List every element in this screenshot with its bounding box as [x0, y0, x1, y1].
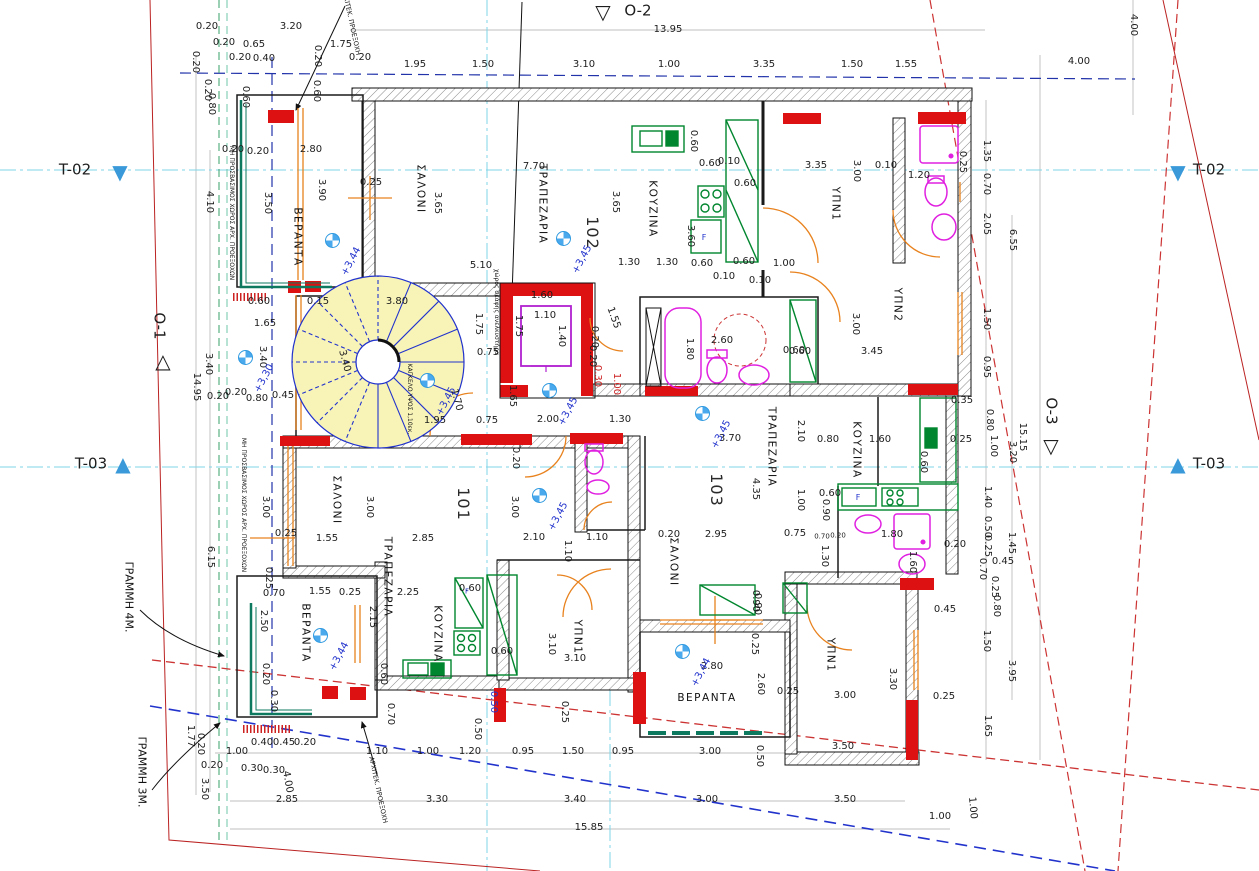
- dimension-label: 0.20: [312, 45, 322, 67]
- dimension-label: 0.20: [225, 388, 247, 398]
- dimension-label: 0.25: [559, 701, 569, 723]
- floor-plan: 13.950.203.200.200.651.750.200.400.200.2…: [0, 0, 1259, 871]
- dimension-label: 3.35: [805, 161, 827, 171]
- dimension-label: 1.10: [562, 540, 572, 562]
- elevation-target-icon: [675, 644, 690, 659]
- room-label: ΣΑΛΟΝΙ: [668, 537, 679, 586]
- dimension-label: 3.80: [386, 297, 408, 307]
- dimension-label: 0.65: [243, 40, 265, 50]
- dimension-label: 0.95: [981, 356, 991, 378]
- dimension-label: 2.00: [537, 415, 559, 425]
- annotation-note: F: [465, 589, 469, 596]
- room-label: ΥΠΝ1: [825, 638, 836, 673]
- dimension-label: 0.25: [957, 151, 967, 173]
- dimension-label: 0.20: [247, 147, 269, 157]
- elevation-target-icon: [420, 373, 435, 388]
- dimension-label: 2.25: [397, 588, 419, 598]
- dimension-label: 6.15: [205, 546, 215, 568]
- elevation-target-icon: [695, 406, 710, 421]
- elevation-value: +3,45: [546, 500, 570, 532]
- dimension-label: 0.80: [206, 93, 216, 115]
- room-label: ΤΡΑΠΕΖΑΡΙΑ: [537, 164, 548, 244]
- dimension-label: 1.40: [556, 325, 566, 347]
- dimension-label: 0.90: [752, 593, 762, 615]
- dimension-label: 3.20: [280, 22, 302, 32]
- dimension-label: 1.30: [618, 258, 640, 268]
- dimension-label: 2.60: [755, 673, 765, 695]
- dimension-label: 0.50: [754, 745, 764, 767]
- dimension-label: 6.55: [1007, 229, 1017, 251]
- dimension-label: 3.00: [699, 747, 721, 757]
- dimension-label: 0.60: [733, 257, 755, 267]
- dimension-label: 0.60: [248, 297, 270, 307]
- dimension-label: 0.70: [981, 173, 991, 195]
- dimension-label: 0.80: [984, 409, 994, 431]
- dimension-label: 2.60: [711, 336, 733, 346]
- dimension-label: 1.40: [982, 486, 992, 508]
- dimension-label: 0.60: [688, 130, 698, 152]
- dimension-label: 0.20: [229, 53, 251, 63]
- elevation-target-icon: [556, 231, 571, 246]
- dimension-label: 3.00: [851, 160, 861, 182]
- dimension-label: 1.30: [656, 258, 678, 268]
- dimension-label: 0.45: [272, 391, 294, 401]
- dimension-label: 1.50: [472, 60, 494, 70]
- dimension-label: 1.00: [417, 747, 439, 757]
- dimension-label: 0.25: [777, 687, 799, 697]
- room-label: ΒΕΡΑΝΤΑ: [677, 693, 736, 704]
- dimension-label: 3.95: [1006, 660, 1016, 682]
- dimension-label: 1.60: [907, 551, 917, 573]
- elevation-value: +3,44: [689, 656, 713, 688]
- dimension-label: 1.00: [966, 796, 978, 819]
- dimension-label: 3.20: [1007, 441, 1017, 463]
- dimension-label: 0.25: [950, 435, 972, 445]
- dimension-label: 0.45: [992, 557, 1014, 567]
- dimension-label: 1.45: [1006, 532, 1016, 554]
- annotation-note: ΓΡΑΜΜΗ 4Μ.: [124, 561, 135, 632]
- dimension-label: 3.65: [432, 192, 442, 214]
- dimension-label: 3.65: [610, 191, 620, 213]
- dimension-label: 0.30: [241, 764, 263, 774]
- dimension-label: 0.95: [512, 747, 534, 757]
- dimension-label: 0.60: [691, 259, 713, 269]
- section-marker-label: O-1: [152, 312, 167, 339]
- dimension-label: 1.75: [473, 313, 483, 335]
- dimension-label: 2.85: [412, 534, 434, 544]
- dimension-label: 0.25: [275, 529, 297, 539]
- dimension-label: 15.15: [1017, 423, 1027, 452]
- section-marker-label: O-3: [1044, 397, 1059, 424]
- dimension-label: 1.75: [330, 40, 352, 50]
- dimension-label: 2.80: [300, 145, 322, 155]
- dimension-label: 1.55: [604, 306, 621, 330]
- dimension-label: 0.60: [734, 179, 756, 189]
- dimension-label: 1.35: [981, 140, 991, 162]
- dimension-label: 0.40: [253, 54, 275, 64]
- dimension-label: 1.50: [981, 630, 991, 652]
- dimension-label: 1.65: [507, 385, 517, 407]
- dimension-label: 1.30: [609, 415, 631, 425]
- section-marker-label: T-03: [1193, 457, 1225, 472]
- dimension-label: 1.80: [881, 530, 903, 540]
- dimension-label: 0.80: [817, 435, 839, 445]
- dimension-label: 4.10: [204, 191, 214, 213]
- dimension-label: 0.20: [830, 533, 846, 540]
- dimension-label: 1.75: [513, 315, 523, 337]
- dimension-label: 0.60: [789, 347, 811, 357]
- elevation-target-icon: [313, 628, 328, 643]
- dimension-label: 3.30: [887, 668, 897, 690]
- dimension-label: 0.60: [459, 584, 481, 594]
- dimension-label: 3.10: [564, 654, 586, 664]
- dimension-label: 0.25: [933, 692, 955, 702]
- dimension-label: 3.00: [696, 795, 718, 805]
- section-marker-icon: △: [155, 351, 170, 371]
- dimension-label: 3.00: [260, 496, 270, 518]
- dimension-label: 1.50: [981, 308, 991, 330]
- dimension-label: 3.10: [573, 60, 595, 70]
- dimension-label: 0.20: [196, 22, 218, 32]
- dimension-label: 0.60: [491, 647, 513, 657]
- dimension-label: 0.80: [991, 595, 1001, 617]
- dimension-label: 0.80: [246, 394, 268, 404]
- dimension-label: 0.60: [311, 80, 321, 102]
- dimension-label: 2.10: [795, 420, 805, 442]
- dimension-label: 1.60: [531, 291, 553, 301]
- dimension-label: 0.20: [213, 38, 235, 48]
- dimension-label: 3.90: [316, 179, 326, 201]
- dimension-label: 1.65: [254, 319, 276, 329]
- annotation-note: F: [702, 234, 707, 242]
- dimension-label: 0.45: [273, 738, 295, 748]
- dimension-label: 0.20: [201, 761, 223, 771]
- room-label: ΒΕΡΑΝΤΑ: [300, 603, 311, 662]
- dimension-label: 3.50: [834, 795, 856, 805]
- dimension-label: 0.90: [820, 499, 830, 521]
- dimension-label: 1.10: [534, 311, 556, 321]
- dimension-label: 0.70: [385, 703, 395, 725]
- dimension-label: 0.70: [263, 589, 285, 599]
- dimension-label: 4.00: [280, 770, 294, 794]
- annotation-note: χώρος σκάφης ανελκυστήρα: [493, 269, 499, 355]
- dimension-label: 3.30: [426, 795, 448, 805]
- dimension-label: 1.20: [908, 171, 930, 181]
- dimension-label: 0.20: [944, 540, 966, 550]
- elevation-value: +3,45: [556, 395, 580, 427]
- dimension-label: 1.65: [982, 715, 992, 737]
- dimension-label: 13.95: [654, 25, 683, 35]
- dimension-label: 0.10: [713, 272, 735, 282]
- dimension-label: 1.00: [773, 259, 795, 269]
- labels-layer: 13.950.203.200.200.651.750.200.400.200.2…: [0, 0, 1259, 871]
- section-marker-icon: ▼: [112, 162, 127, 182]
- dimension-label: 4.35: [750, 478, 760, 500]
- dimension-label: 1.55: [309, 587, 331, 597]
- section-marker-label: T-03: [75, 457, 107, 472]
- dimension-label: 3.50: [832, 742, 854, 752]
- dimension-label: 3.00: [850, 313, 860, 335]
- dimension-label: 2.05: [981, 213, 991, 235]
- elevation-target-icon: [532, 488, 547, 503]
- section-marker-label: T-02: [59, 163, 91, 178]
- dimension-label: 3.45: [861, 347, 883, 357]
- dimension-label: 0.20: [190, 51, 200, 73]
- dimension-label: 3.35: [753, 60, 775, 70]
- dimension-label: 1.50: [841, 60, 863, 70]
- dimension-label: 1.80: [684, 338, 694, 360]
- dimension-label: 15.85: [575, 823, 604, 833]
- dimension-label: 0.10: [749, 276, 771, 286]
- annotation-note: ΜΗ ΠΡΟΣΒΑΣΙΜΟΣ ΧΩΡΟΣ ΑΡΧ. ΠΡΟΕΞΟΧΩΝ: [240, 438, 246, 572]
- room-label: ΣΑΛΟΝΙ: [331, 475, 342, 524]
- dimension-label: 1.77: [185, 725, 195, 747]
- section-marker-icon: ▼: [1170, 162, 1185, 182]
- dimension-label: 5.10: [470, 261, 492, 271]
- dimension-label: 0.50: [488, 691, 498, 713]
- dimension-label: 0.25: [360, 178, 382, 188]
- dimension-label: 0.45: [934, 605, 956, 615]
- section-marker-icon: ▲: [1170, 454, 1185, 474]
- dimension-label: 3.60: [685, 225, 695, 247]
- room-label: ΣΑΛΟΝΙ: [415, 164, 426, 213]
- dimension-label: 0.25: [263, 567, 273, 589]
- dimension-label: 1.00: [658, 60, 680, 70]
- dimension-label: 1.00: [611, 373, 621, 395]
- section-marker-label: O-2: [624, 4, 651, 19]
- section-marker-icon: ▽: [595, 2, 610, 22]
- unit-number-label: 101: [455, 487, 471, 521]
- unit-number-label: 103: [708, 473, 724, 507]
- dimension-label: 3.40: [564, 795, 586, 805]
- section-marker-label: T-02: [1193, 163, 1225, 178]
- dimension-label: 3.00: [509, 496, 519, 518]
- dimension-label: 14.95: [191, 373, 201, 402]
- dimension-label: 1.95: [404, 60, 426, 70]
- room-label: ΤΡΑΠΕΖΑΡΙΑ: [766, 407, 777, 487]
- room-label: ΚΟΥΖΙΝΑ: [647, 180, 658, 237]
- dimension-label: 0.30: [592, 365, 602, 387]
- dimension-label: 1.50: [562, 747, 584, 757]
- dimension-label: 0.70: [814, 534, 830, 541]
- dimension-label: 0.25: [982, 535, 992, 557]
- dimension-label: 0.75: [476, 416, 498, 426]
- dimension-label: 3.50: [199, 778, 209, 800]
- dimension-label: 1.00: [226, 747, 248, 757]
- annotation-note: ΚΑΓΚΕΛΟ ΥΨΟΣ 1,10εκ.: [406, 364, 412, 435]
- dimension-label: 1.00: [988, 435, 998, 457]
- dimension-label: 0.10: [875, 161, 897, 171]
- dimension-label: 3.00: [364, 496, 374, 518]
- elevation-target-icon: [542, 383, 557, 398]
- dimension-label: 0.70: [977, 558, 987, 580]
- dimension-label: 0.25: [749, 633, 759, 655]
- dimension-label: 3.50: [262, 192, 272, 214]
- dimension-label: 0.95: [612, 747, 634, 757]
- dimension-label: 3.00: [834, 691, 856, 701]
- elevation-value: +3,45: [570, 243, 594, 275]
- dimension-label: 2.95: [705, 530, 727, 540]
- elevation-value: +3,44: [327, 640, 351, 672]
- section-marker-icon: ▲: [115, 454, 130, 474]
- dimension-label: 3.40: [336, 349, 351, 373]
- dimension-label: 0.60: [819, 489, 841, 499]
- room-label: ΚΟΥΖΙΝΑ: [851, 421, 862, 478]
- dimension-label: 0.20: [587, 345, 597, 367]
- dimension-label: 0.60: [378, 663, 388, 685]
- room-label: ΥΠΝ1: [830, 187, 841, 222]
- dimension-label: 3.10: [546, 633, 556, 655]
- dimension-label: 0.20: [195, 733, 205, 755]
- dimension-label: 2.85: [276, 795, 298, 805]
- room-label: ΥΠΝ2: [892, 288, 903, 323]
- dimension-label: 4.00: [1128, 14, 1138, 36]
- dimension-label: 1.60: [869, 435, 891, 445]
- dimension-label: 3.40: [203, 353, 213, 375]
- dimension-label: 0.60: [240, 86, 250, 108]
- room-label: ΤΡΑΠΕΖΑΡΙΑ: [382, 537, 393, 617]
- dimension-label: 2.50: [258, 610, 268, 632]
- dimension-label: 4.00: [1068, 57, 1090, 67]
- annotation-note: ΓΡΑΜΜΗ 3Μ.: [137, 736, 148, 807]
- dimension-label: 1.20: [459, 747, 481, 757]
- dimension-label: 0.30: [268, 690, 278, 712]
- dimension-label: 1.10: [366, 747, 388, 757]
- dimension-label: 0.60: [918, 451, 928, 473]
- dimension-label: 1.10: [586, 533, 608, 543]
- dimension-label: 1.55: [895, 60, 917, 70]
- annotation-note: F: [856, 494, 861, 502]
- annotation-note: ΑΡΧΙΤΕΚ. ΠΡΟΕΞΟΧΗ: [368, 756, 388, 824]
- elevation-target-icon: [325, 233, 340, 248]
- dimension-label: 2.15: [367, 606, 377, 628]
- room-label: ΥΠΝ1: [572, 620, 583, 655]
- section-marker-icon: ▽: [1043, 436, 1058, 456]
- dimension-label: 0.35: [951, 396, 973, 406]
- dimension-label: 0.20: [260, 663, 270, 685]
- dimension-label: 0.10: [718, 157, 740, 167]
- dimension-label: 0.15: [307, 297, 329, 307]
- elevation-target-icon: [238, 350, 253, 365]
- dimension-label: 1.00: [795, 489, 805, 511]
- dimension-label: 0.20: [294, 738, 316, 748]
- dimension-label: 0.75: [784, 529, 806, 539]
- room-label: ΚΟΥΖΙΝΑ: [432, 605, 443, 662]
- dimension-label: 1.55: [316, 534, 338, 544]
- elevation-value: +3,44: [339, 245, 363, 277]
- dimension-label: 0.20: [510, 447, 520, 469]
- dimension-label: 0.25: [339, 588, 361, 598]
- dimension-label: 0.50: [472, 718, 482, 740]
- dimension-label: 1.00: [929, 812, 951, 822]
- annotation-note: ΜΗ ΠΡΟΣΒΑΣΙΜΟΣ ΧΩΡΟΣ ΑΡΧ. ΠΡΟΕΞΟΧΩΝ: [228, 146, 234, 280]
- room-label: ΒΕΡΑΝΤΑ: [292, 207, 303, 266]
- dimension-label: 1.30: [819, 545, 829, 567]
- dimension-label: 2.10: [523, 533, 545, 543]
- dimension-label: 0.40: [251, 738, 273, 748]
